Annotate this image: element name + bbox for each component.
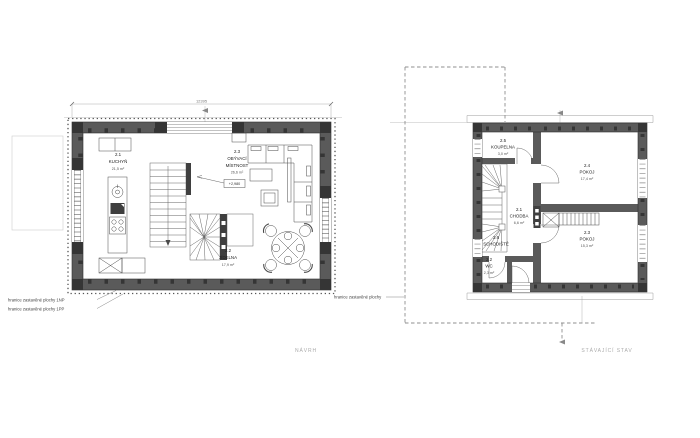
windows-left-plan <box>72 122 331 242</box>
plan-captions: NÁVRH STÁVAJÍCÍ STAV <box>295 347 633 354</box>
kitchen-island <box>108 177 127 253</box>
dimension-text: 12395 <box>196 99 208 104</box>
stair-newel <box>499 224 505 230</box>
boundary-label-plain: hranice zastavěné plochy <box>334 295 382 300</box>
wall-stub <box>288 158 292 202</box>
right-plan: 2.5 KOUPELNA 3,0 m² 2.4 POKOJ 17,4 m² 2.… <box>390 110 653 323</box>
room-name: CHODBA <box>510 214 529 219</box>
tv-unit <box>261 190 278 206</box>
room24-door <box>541 165 559 183</box>
room-area: 15,3 m² <box>581 244 594 248</box>
room-name: KOUPELNA <box>491 145 515 150</box>
entry-door <box>512 266 529 283</box>
dashed-boundary <box>405 67 597 339</box>
staircase-left-plan <box>150 163 253 260</box>
room-number: 2.4 <box>584 163 591 168</box>
boundary-label-1pp: hranice zastavěné plochy 1PP <box>8 307 65 312</box>
room-area: 3,0 m² <box>498 152 509 156</box>
sink-icon <box>112 187 123 198</box>
room-number: 2.1 <box>516 207 523 212</box>
drawing-sheet: 12395 <box>0 0 700 438</box>
floorplan-drawing: 12395 <box>0 0 700 438</box>
room-name: POKOJ <box>580 170 595 175</box>
level-value: +2,980 <box>229 182 240 186</box>
caption-navrh: NÁVRH <box>295 347 317 354</box>
counter-block <box>227 214 253 246</box>
room-area: 6,6 m² <box>514 221 525 225</box>
room-number: 2.3 <box>234 149 241 154</box>
room-area: 26,6 m² <box>231 171 244 175</box>
terrace-outline <box>12 136 63 230</box>
boundary-label-1np: hranice zastavěné plochy 1NP <box>8 298 65 303</box>
room23-door <box>541 225 559 243</box>
room-number: 2.2 <box>225 248 232 253</box>
room-area: 17,4 m² <box>581 177 594 181</box>
room-name: WC <box>485 264 492 269</box>
room-area: 17,9 m² <box>222 263 235 267</box>
level-marker: +2,980 <box>197 175 245 187</box>
stair-newel <box>499 186 505 192</box>
room-name: POKOJ <box>580 237 595 242</box>
room-labels-left-plan: 2.1 KUCHYŇ 21,5 m² 2.3 OBÝVACÍ MÍSTNOST … <box>109 149 249 267</box>
left-plan: 12395 <box>12 99 342 294</box>
caption-stavajici-stav: STÁVAJÍCÍ STAV <box>581 347 632 354</box>
room-area: 2,3 m² <box>484 271 495 275</box>
dining-set <box>263 224 312 273</box>
cooktop-icon <box>110 217 126 234</box>
room-number: 2.5 <box>500 138 507 143</box>
room-name: MÍSTNOST <box>226 163 249 168</box>
room-number: 2.6 <box>493 235 500 240</box>
room-number: 2.3 <box>584 230 591 235</box>
leader-arrow-icon <box>197 175 202 178</box>
room-name: KUCHYŇ <box>109 159 128 164</box>
sofa <box>248 145 312 222</box>
living-room-furniture <box>232 133 312 222</box>
boundary-arrow-icon <box>559 340 565 345</box>
room-name: JÍDELNA <box>219 255 237 260</box>
stair-rail-wall <box>186 163 191 195</box>
room-number: 2.2 <box>486 257 493 262</box>
room-name: SCHODIŠTĚ <box>483 242 509 247</box>
room-name: OBÝVACÍ <box>227 156 247 161</box>
room-number: 2.1 <box>115 152 122 157</box>
stair-direction-arrow-icon <box>166 240 171 246</box>
room-area: 21,5 m² <box>112 167 125 171</box>
coffee-table <box>250 169 272 181</box>
